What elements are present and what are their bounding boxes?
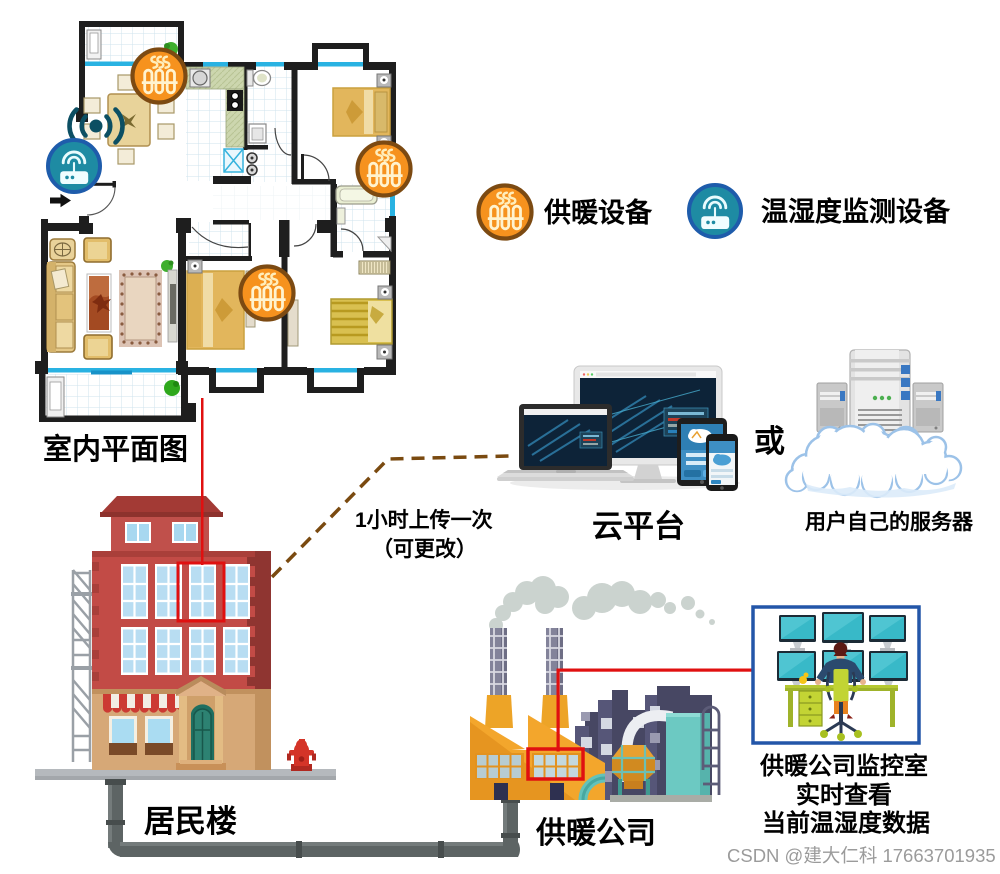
svg-text:供暖设备: 供暖设备 [543,198,653,228]
svg-text:供暖公司监控室: 供暖公司监控室 [759,752,928,780]
svg-text:用户自己的服务器: 用户自己的服务器 [805,510,974,534]
svg-text:（可更改）: （可更改） [372,537,477,561]
svg-text:或: 或 [754,424,785,459]
svg-text:云平台: 云平台 [592,509,685,544]
svg-text:CSDN @建大仁科 17663701935: CSDN @建大仁科 17663701935 [727,845,996,866]
svg-text:供暖公司: 供暖公司 [535,817,656,850]
svg-text:室内平面图: 室内平面图 [43,432,188,466]
svg-text:温湿度监测设备: 温湿度监测设备 [761,196,951,227]
svg-text:1小时上传一次: 1小时上传一次 [355,508,493,532]
svg-text:居民楼: 居民楼 [144,804,237,839]
svg-text:当前温湿度数据: 当前温湿度数据 [762,809,930,837]
svg-text:实时查看: 实时查看 [796,781,892,809]
